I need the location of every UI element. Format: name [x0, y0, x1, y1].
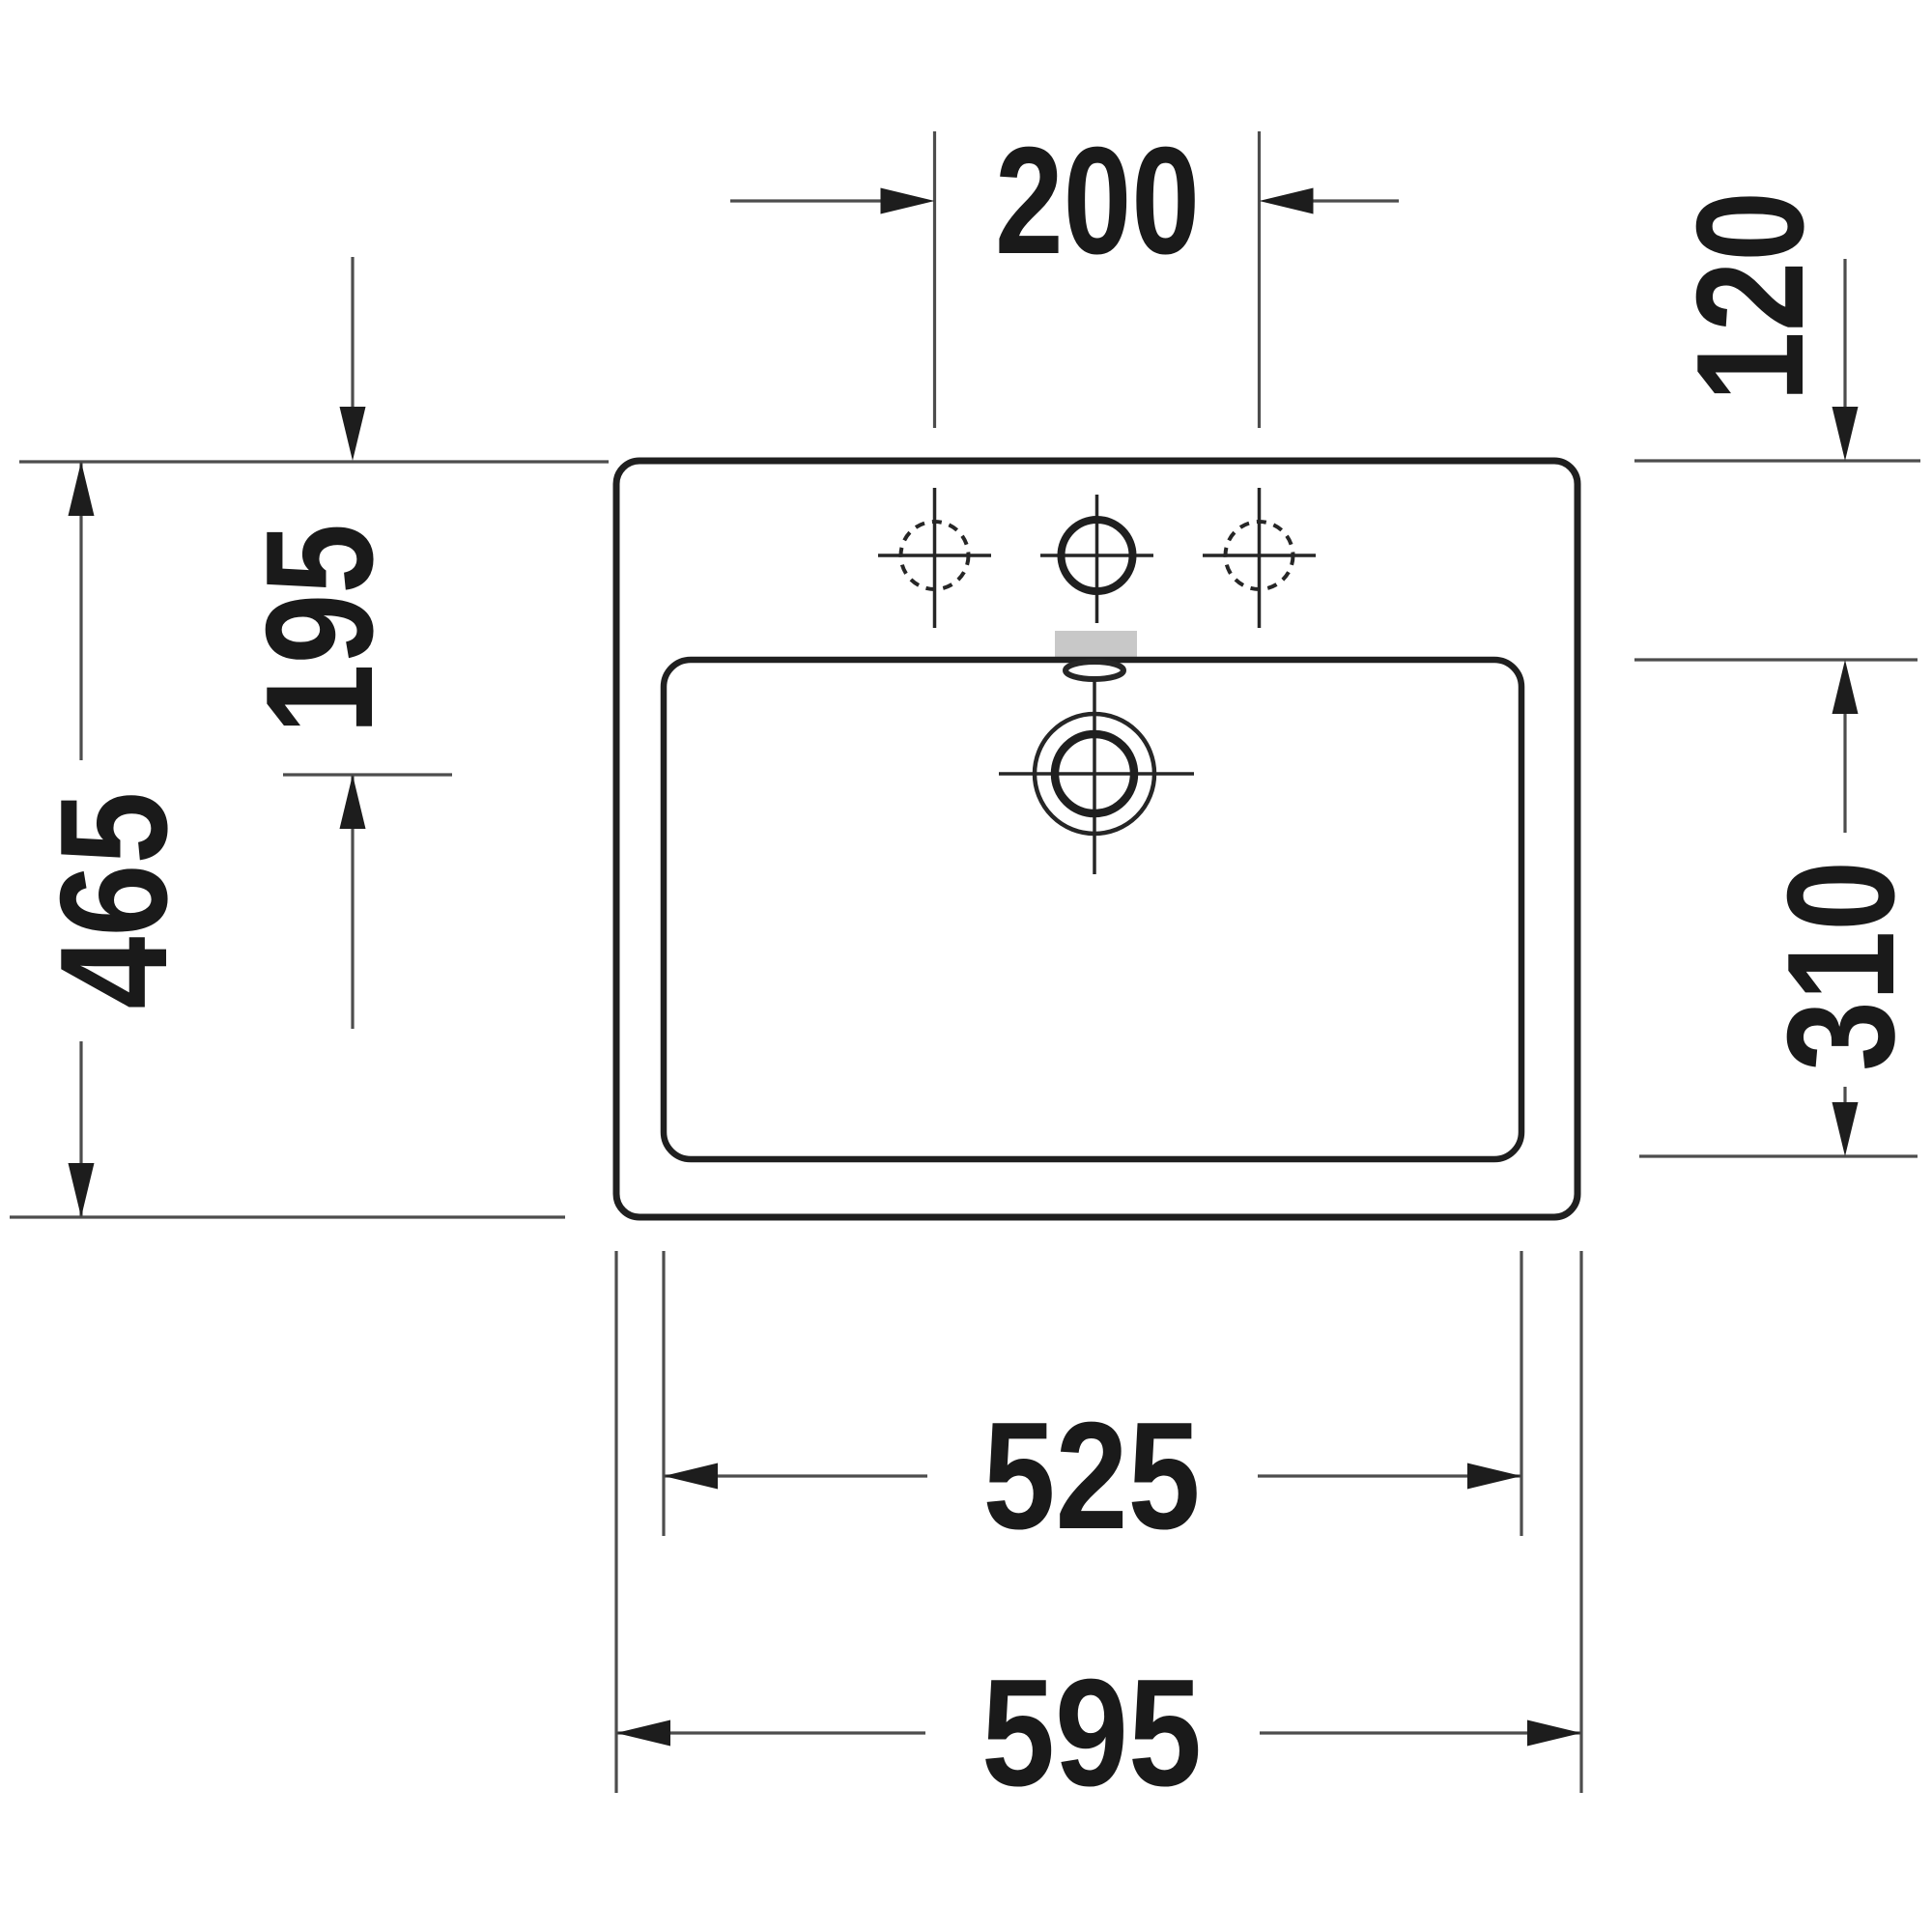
arrowhead-left-icon	[1260, 188, 1314, 214]
drawing-canvas: 200 120 310 465 195	[0, 0, 1932, 1932]
arrowhead-left-icon	[664, 1463, 718, 1490]
dimension-tap-hole-spacing: 200	[730, 116, 1399, 428]
dimension-basin-width: 525	[664, 1251, 1521, 1561]
dimension-label-195: 195	[235, 524, 405, 734]
washbasin-technical-drawing: 200 120 310 465 195	[0, 0, 1932, 1932]
dimension-label-120: 120	[1665, 191, 1835, 402]
arrowhead-down-icon	[1833, 1102, 1859, 1156]
arrowhead-left-icon	[616, 1720, 670, 1747]
dimension-label-525: 525	[983, 1391, 1201, 1561]
arrowhead-up-icon	[340, 775, 366, 829]
dimension-label-465: 465	[29, 792, 199, 1009]
dimension-basin-depth: 310	[1634, 660, 1926, 1156]
dimension-label-595: 595	[981, 1648, 1202, 1818]
arrowhead-down-icon	[69, 1163, 95, 1217]
tap-spout-shadow	[1055, 631, 1137, 657]
dimension-label-200: 200	[995, 116, 1200, 286]
arrowhead-right-icon	[1467, 1463, 1521, 1490]
arrowhead-down-icon	[340, 407, 366, 461]
dimension-label-310: 310	[1756, 861, 1926, 1071]
dimension-rear-to-basin: 120	[1634, 191, 1920, 461]
dimension-rear-to-drain: 195	[235, 257, 452, 1029]
arrowhead-down-icon	[1833, 407, 1859, 461]
arrowhead-right-icon	[1527, 1720, 1581, 1747]
arrowhead-right-icon	[881, 188, 935, 214]
arrowhead-up-icon	[1833, 660, 1859, 714]
arrowhead-up-icon	[69, 462, 95, 516]
overflow-slot	[1065, 662, 1123, 679]
